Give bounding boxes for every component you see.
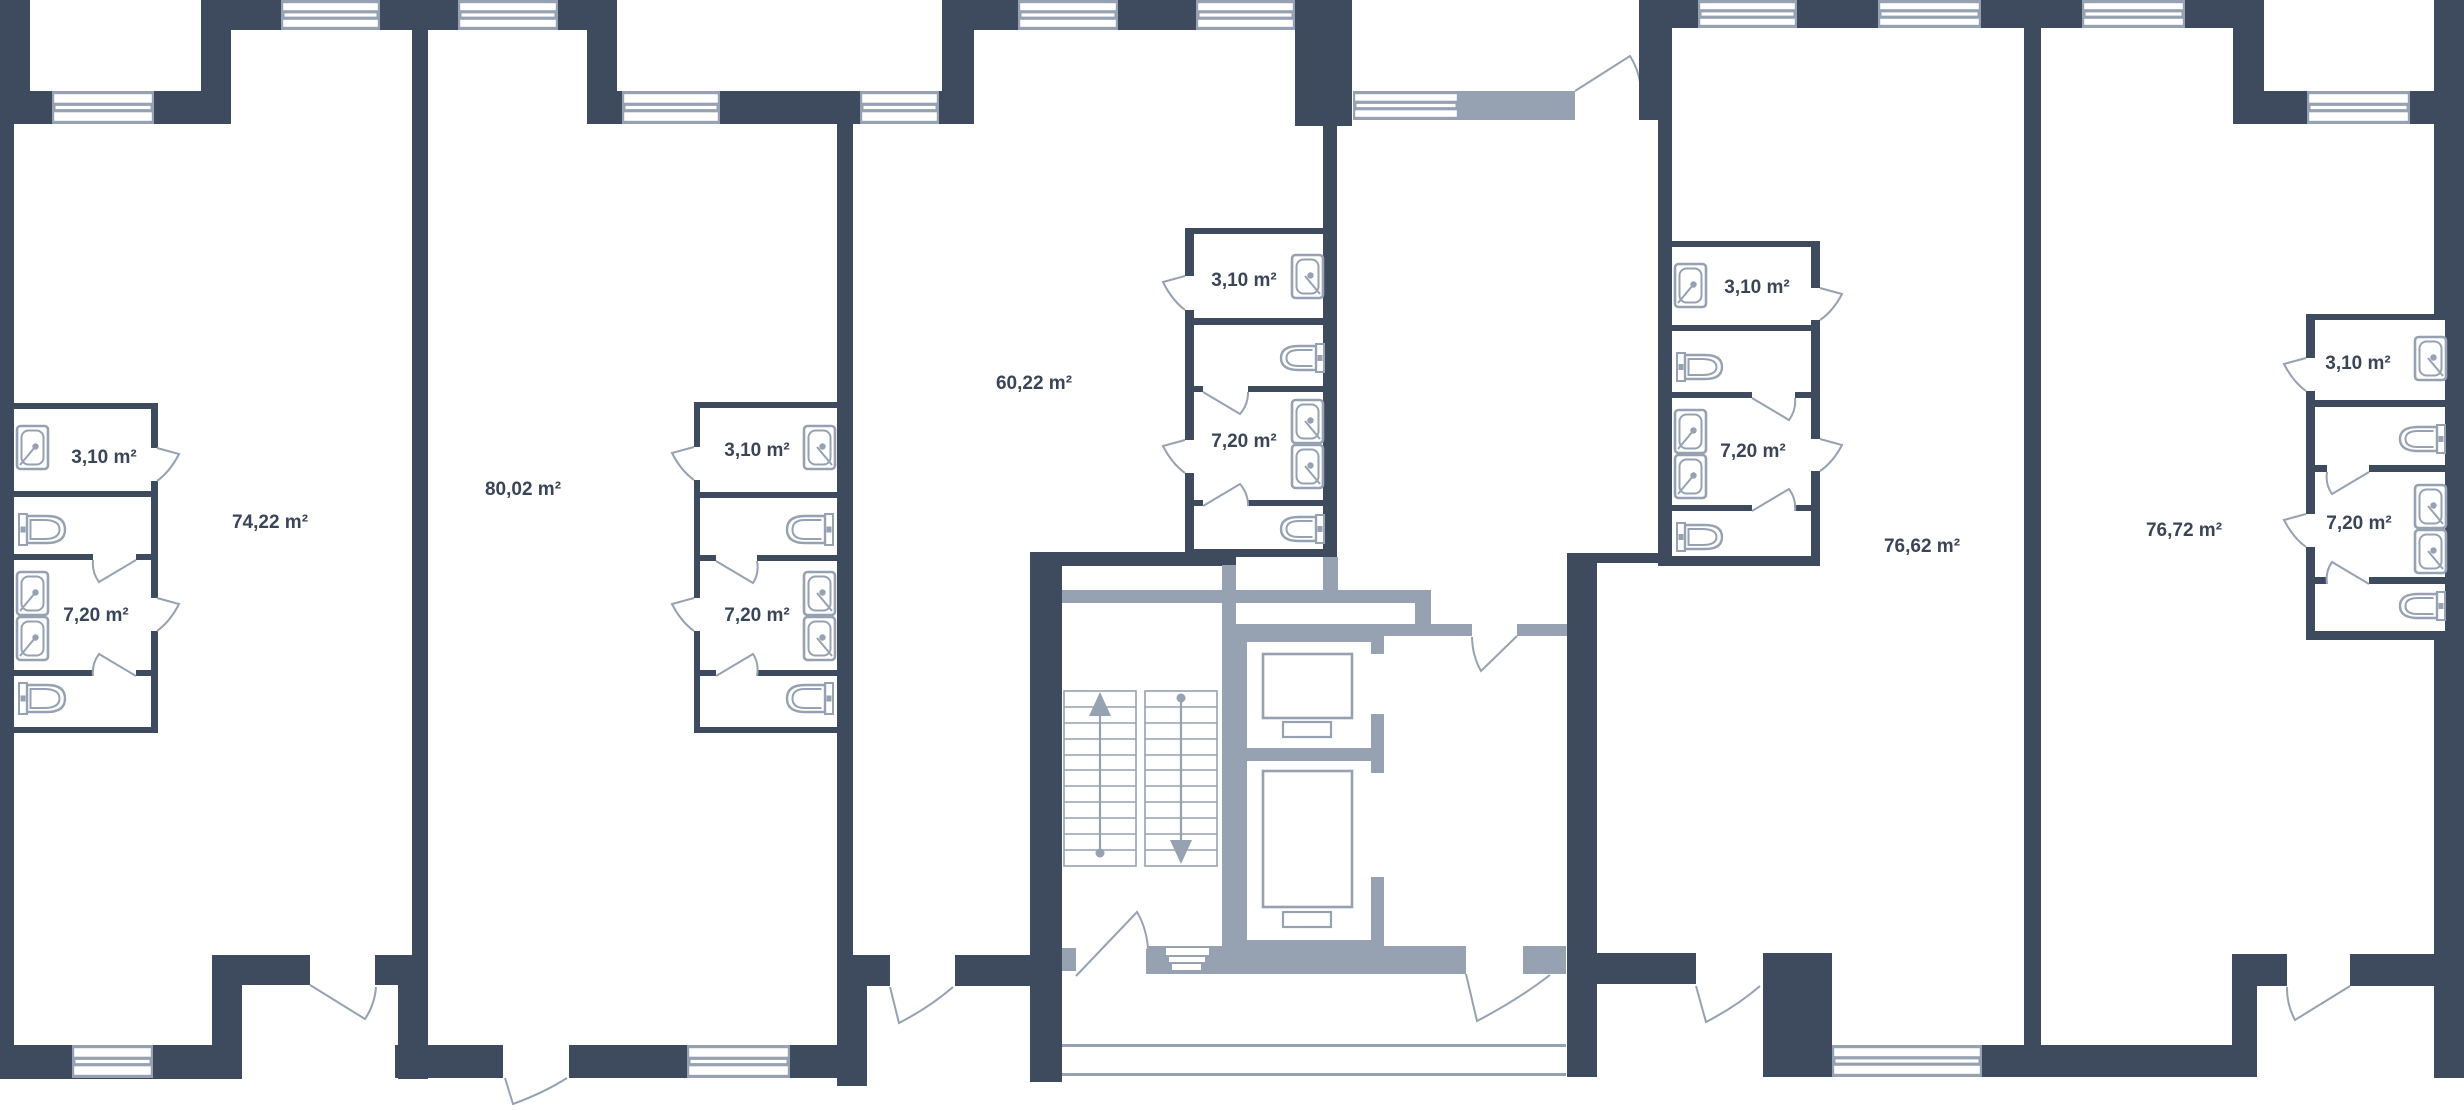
svg-text:3,10 m²: 3,10 m² [2325, 353, 2390, 374]
svg-text:3,10 m²: 3,10 m² [1724, 277, 1789, 298]
svg-text:60,22 m²: 60,22 m² [996, 373, 1072, 394]
svg-text:3,10 m²: 3,10 m² [71, 447, 136, 468]
svg-text:80,02 m²: 80,02 m² [485, 479, 561, 500]
svg-text:3,10 m²: 3,10 m² [724, 440, 789, 461]
svg-text:76,72 m²: 76,72 m² [2146, 520, 2222, 541]
svg-text:7,20 m²: 7,20 m² [2326, 513, 2391, 534]
svg-text:7,20 m²: 7,20 m² [63, 605, 128, 626]
svg-text:76,62 m²: 76,62 m² [1884, 536, 1960, 557]
svg-text:7,20 m²: 7,20 m² [1720, 441, 1785, 462]
svg-text:7,20 m²: 7,20 m² [724, 605, 789, 626]
svg-text:7,20 m²: 7,20 m² [1211, 431, 1276, 452]
svg-text:74,22 m²: 74,22 m² [232, 512, 308, 533]
svg-text:3,10 m²: 3,10 m² [1211, 270, 1276, 291]
